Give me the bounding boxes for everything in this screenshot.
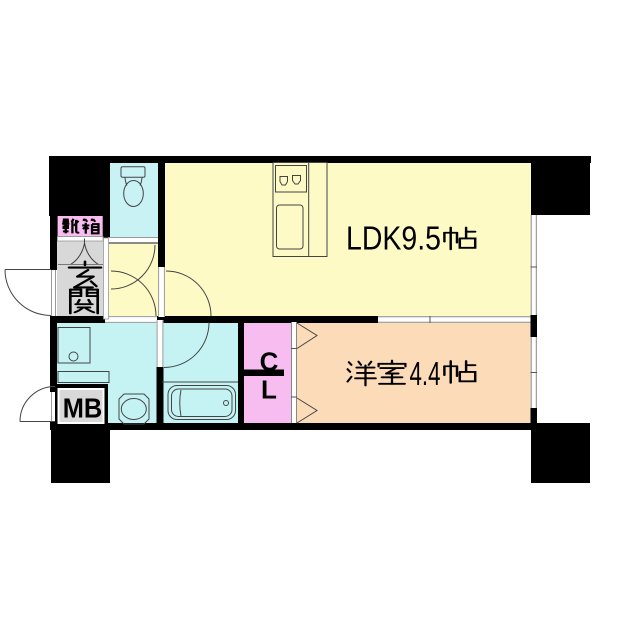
svg-text:C: C <box>260 347 279 377</box>
svg-text:MB: MB <box>63 393 103 424</box>
svg-text:L: L <box>261 375 277 405</box>
svg-text:4.4: 4.4 <box>410 355 441 392</box>
svg-text:LDK9.5: LDK9.5 <box>346 220 441 257</box>
